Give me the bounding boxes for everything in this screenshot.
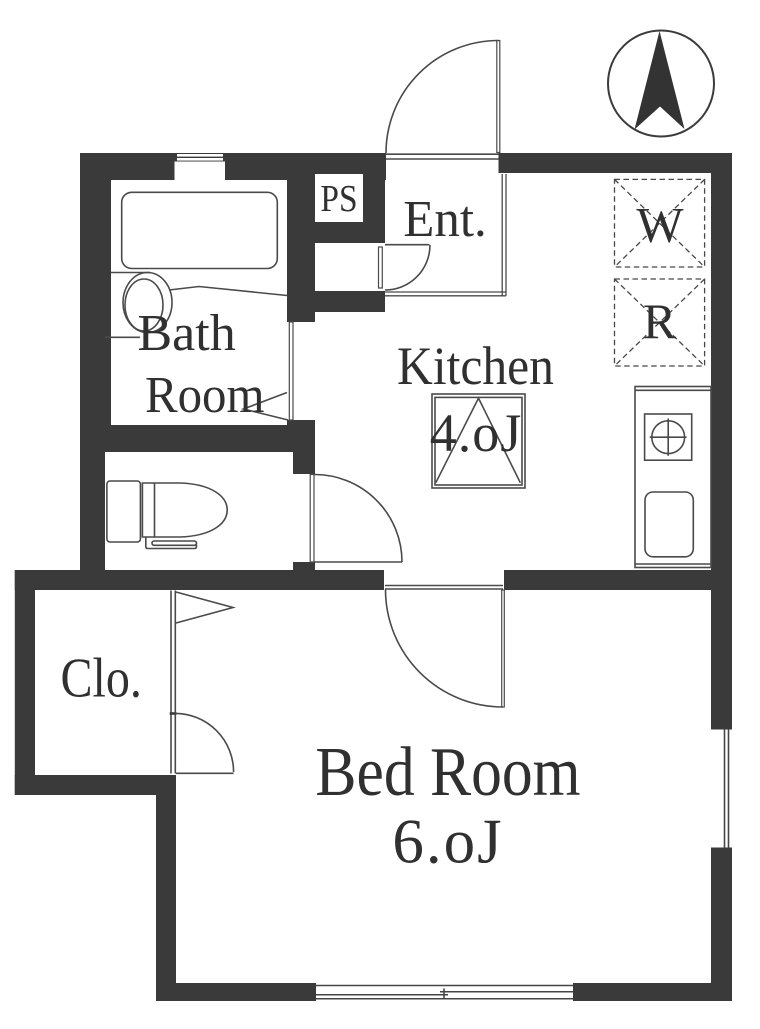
svg-text:PS: PS	[320, 177, 357, 219]
svg-text:Clo.: Clo.	[61, 647, 142, 709]
svg-text:Bed Room: Bed Room	[315, 733, 580, 811]
svg-text:W: W	[636, 197, 684, 253]
svg-text:Kitchen: Kitchen	[397, 337, 554, 397]
svg-text:Room: Room	[145, 366, 264, 424]
svg-text:Ent.: Ent.	[403, 191, 486, 249]
svg-text:Bath: Bath	[138, 305, 236, 362]
svg-text:R: R	[643, 293, 677, 349]
svg-text:4.oJ: 4.oJ	[430, 403, 523, 463]
svg-text:6.oJ: 6.oJ	[392, 807, 503, 877]
